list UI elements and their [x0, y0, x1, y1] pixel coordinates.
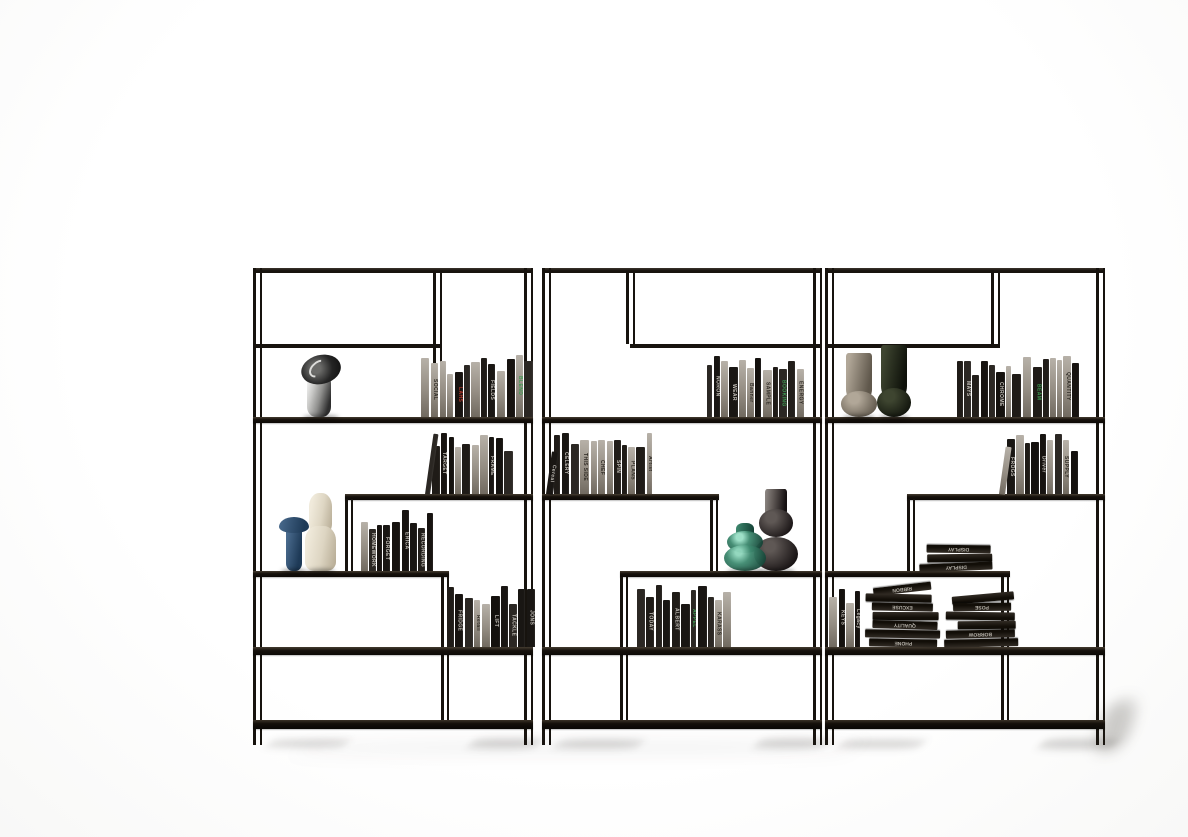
book-title: THIS SIDE — [582, 453, 587, 481]
book-spine — [636, 447, 645, 494]
step-shelf-b — [907, 494, 1105, 500]
object-shadow — [843, 415, 875, 420]
book-title: JONS — [529, 610, 534, 625]
book-title: LAHS — [457, 387, 462, 402]
book-row: HOMEWORKFORGETERICARECORDING — [361, 505, 441, 571]
book-title: MAYS — [965, 381, 970, 397]
book-title: Driver — [1040, 456, 1045, 473]
step-support — [710, 499, 718, 571]
book-spine — [462, 444, 470, 494]
book-spine — [1016, 435, 1023, 494]
unit-right-leg — [813, 268, 822, 745]
book-spine: SAMPLE — [763, 370, 772, 417]
book-spine — [501, 586, 508, 647]
book-spine: JONS — [527, 589, 535, 647]
book-spine: Retail — [474, 600, 480, 647]
book-spine — [440, 361, 447, 417]
shelf-d — [253, 647, 533, 655]
book-spine: MAYS — [964, 361, 972, 417]
book-spine — [721, 361, 728, 417]
book-title: QUANTITY — [1065, 372, 1070, 401]
book-spine: FRIDGE — [455, 594, 463, 647]
book-spine — [957, 361, 963, 417]
book-spine — [1023, 357, 1031, 417]
stacked-book: POSE — [953, 603, 1011, 612]
book-spine: ERICA — [402, 510, 409, 571]
book-title: SOCIAL — [432, 379, 437, 400]
book-spine: APPEL — [691, 590, 697, 647]
vase-sphere — [841, 391, 877, 417]
shelf-c — [825, 571, 1010, 577]
book-spine — [361, 522, 368, 572]
book-spine — [591, 441, 597, 494]
book-title: TARGET — [441, 452, 446, 475]
floor-shadow — [266, 740, 350, 747]
shelf-unit-middle: NORONWEARBannerSAMPLEBOOKINGENERGY Cerea… — [542, 268, 822, 745]
book-title: SPIN — [615, 460, 620, 473]
book-spine — [496, 438, 503, 494]
book-spine — [465, 598, 473, 647]
book-title: FRIDGE — [457, 610, 462, 631]
book-spine: QUANTITY — [1063, 356, 1071, 418]
book-title: SUPPLY — [1063, 456, 1068, 478]
book-row: FROGSDriverSUPPLY — [999, 428, 1091, 494]
book-spine — [504, 451, 513, 494]
book-spine: CELERY — [562, 433, 568, 494]
book-title: FIELDS — [489, 380, 494, 400]
floor-shadow — [554, 740, 645, 748]
book-spine: TODAY — [646, 597, 654, 647]
book-title: NORON — [715, 376, 720, 397]
sculpture-head — [298, 351, 344, 388]
step-support — [907, 499, 915, 571]
book-spine — [1071, 451, 1079, 494]
book-title: ALBERT — [673, 608, 678, 631]
olive-vase — [877, 345, 911, 417]
object-shadow — [727, 569, 764, 574]
vase-sphere — [877, 388, 911, 417]
vase-bottom-bulb — [724, 545, 766, 571]
floor-shadow — [467, 739, 543, 748]
stacked-book — [957, 621, 1015, 630]
taupe-vase — [841, 353, 877, 417]
bottom-shelf — [825, 720, 1105, 729]
book-title: TACKLE — [510, 614, 515, 636]
book-spine — [571, 444, 580, 494]
book-spine: NORON — [714, 356, 720, 417]
book-spine — [410, 523, 417, 571]
book-spine: FIELDS — [488, 364, 496, 417]
book-title: KARASS — [716, 612, 721, 636]
unit-left-leg — [253, 268, 262, 745]
cream-vase — [305, 493, 337, 571]
book-spine — [622, 445, 627, 494]
book-spine: LIFT — [491, 596, 499, 647]
book-title: CELERY — [563, 452, 568, 475]
book-title: SAMPLE — [765, 382, 770, 405]
book-title: Retail — [475, 615, 480, 631]
book-title: KEYS — [840, 610, 845, 625]
book-spine: BEAM — [1033, 367, 1042, 417]
book-spine: CHROME — [996, 372, 1005, 417]
stacked-book — [945, 612, 1014, 621]
book-title: HOMEWORK — [370, 533, 375, 567]
book-row: CerealCELERYTHIS SIDECHEFSPINPLANSArtist — [546, 428, 678, 494]
shelf-a — [542, 417, 822, 423]
book-pile: POSEBORROW — [943, 597, 1023, 647]
book-spine — [637, 589, 645, 647]
chrome-sculpture — [301, 355, 341, 417]
shelf-unit-right: MAYSCHROMEBEAMQUANTITY FROGSDriverSUPPLY… — [825, 268, 1105, 745]
step-support — [345, 499, 353, 571]
book-spine: ALBERT — [672, 592, 680, 647]
book-title: TODAY — [647, 612, 652, 631]
book-spine: LAHS — [455, 372, 463, 417]
book-spine — [482, 604, 490, 647]
box-divider — [626, 273, 635, 344]
unit-left-leg — [825, 268, 834, 745]
stacked-book — [866, 593, 932, 602]
book-spine — [447, 587, 454, 648]
book-spine — [392, 522, 400, 571]
box-bottom-bar — [253, 344, 440, 348]
book-title: APPEL — [691, 609, 696, 628]
unit-top-frame — [542, 268, 822, 273]
book-spine — [427, 513, 432, 571]
book-spine: TARGET — [441, 433, 447, 494]
book-spine — [1057, 360, 1062, 417]
book-stack: DISPLAYDISPLAY — [919, 543, 999, 571]
book-title: LIFT — [493, 615, 498, 627]
book-title: BEAM — [1035, 384, 1040, 400]
book-spine — [773, 367, 778, 417]
book-spine — [447, 374, 453, 417]
stacked-book: PHONE — [870, 638, 938, 647]
book-title: ENERGY — [798, 381, 803, 405]
book-spine — [1050, 358, 1056, 417]
book-title: FORGET — [384, 537, 389, 560]
box-bottom-bar — [825, 344, 1000, 348]
book-spine: FORGET — [383, 525, 390, 571]
floor-shadow — [753, 739, 831, 748]
book-title: CHROME — [998, 382, 1003, 407]
unit-top-frame — [253, 268, 533, 273]
stacked-book — [872, 612, 938, 620]
book-spine — [1012, 374, 1021, 417]
book-row: NORONWEARBannerSAMPLEBOOKINGENERGY — [707, 351, 807, 417]
book-spine — [656, 585, 663, 647]
stacked-book: QUALITY — [873, 620, 938, 630]
box-bottom-bar — [630, 344, 822, 348]
unit-right-leg — [1096, 268, 1105, 745]
book-spine: Banner — [747, 368, 755, 417]
book-spine — [481, 358, 487, 417]
book-spine: TACKLE — [509, 604, 518, 648]
book-spine — [421, 358, 429, 417]
book-spine — [607, 441, 613, 494]
book-pile: RIBBONEXCUSEQUALITYPHONE — [863, 581, 941, 647]
object-shadow — [281, 569, 307, 574]
stacked-book: BORROW — [946, 629, 1015, 639]
book-spine: BLEND — [516, 355, 523, 417]
teal-glass-vase — [724, 523, 766, 571]
book-spine: ENERGY — [797, 369, 804, 417]
book-title: CHEF — [599, 460, 604, 475]
book-spine: RECORDING — [418, 528, 425, 571]
stacked-book — [944, 638, 1018, 648]
book-spine — [472, 445, 479, 494]
book-spine — [1043, 359, 1049, 417]
book-title: Legacy — [855, 609, 860, 629]
floor-shadow — [838, 740, 927, 748]
object-shadow — [879, 415, 909, 420]
shelf-d — [825, 647, 1105, 655]
book-row: MAYSCHROMEBEAMQUANTITY — [957, 351, 1097, 417]
stacked-book: DISPLAY — [920, 561, 993, 572]
book-spine — [1072, 363, 1079, 417]
book-spine: BOOKING — [779, 369, 788, 417]
book-spine — [723, 592, 731, 647]
book-spine: WEAR — [729, 367, 738, 417]
step-shelf-b — [345, 494, 533, 500]
book-spine — [981, 361, 988, 417]
unit-left-leg — [542, 268, 551, 745]
book-spine — [707, 365, 712, 417]
box-divider — [991, 273, 1000, 344]
book-spine: KEYS — [839, 589, 845, 647]
book-title: PLANS — [629, 461, 634, 480]
shelf-d — [542, 647, 822, 655]
book-title: Banner — [748, 383, 753, 403]
book-row: TARGETFRAME — [425, 428, 523, 494]
book-spine — [464, 365, 469, 418]
book-spine — [663, 600, 669, 647]
book-spine: THIS SIDE — [580, 440, 588, 494]
book-spine: SPIN — [614, 440, 622, 494]
book-spine — [455, 447, 461, 494]
book-spine: FRAME — [489, 437, 494, 494]
shelf-a — [253, 417, 533, 423]
book-spine — [449, 437, 454, 494]
book-spine — [739, 360, 746, 417]
book-spine — [698, 586, 707, 647]
vase-bowl — [279, 517, 309, 533]
book-spine — [989, 365, 995, 417]
book-spine — [524, 361, 533, 417]
object-shadow — [307, 569, 335, 574]
book-spine — [846, 603, 854, 648]
book-row: TODAYALBERTAPPELKARASS — [637, 581, 725, 647]
blue-vase — [279, 517, 309, 571]
book-spine: Legacy — [855, 591, 861, 647]
book-title: RECORDING — [419, 533, 424, 567]
stacked-book — [865, 629, 940, 638]
book-spine — [788, 361, 794, 417]
book-spine — [829, 597, 837, 647]
book-spine: Driver — [1040, 434, 1046, 494]
unit-right-leg — [524, 268, 533, 745]
book-row: SOCIALLAHSFIELDSBLEND — [421, 351, 527, 417]
shelf-unit-left: SOCIALLAHSFIELDSBLEND TARGETFRAME HOMEWO… — [253, 268, 533, 745]
book-spine — [1055, 434, 1062, 494]
book-title: BLEND — [517, 376, 522, 395]
product-scene: SOCIALLAHSFIELDSBLEND TARGETFRAME HOMEWO… — [0, 0, 1188, 837]
stacked-book: DISPLAY — [926, 545, 990, 554]
book-spine — [497, 371, 505, 417]
book-spine — [377, 525, 382, 571]
book-spine: HOMEWORK — [369, 529, 376, 571]
bottom-shelf — [253, 720, 533, 729]
book-title: FRAME — [489, 456, 494, 476]
bottom-shelf — [542, 720, 822, 729]
book-spine — [518, 589, 524, 648]
book-spine: SOCIAL — [431, 363, 438, 417]
book-spine: KARASS — [715, 600, 722, 647]
book-spine — [755, 358, 760, 417]
unit-top-frame — [825, 268, 1105, 273]
book-row: KEYSLegacy — [829, 581, 865, 647]
vase-body — [286, 528, 302, 571]
stacked-book: EXCUSE — [871, 602, 932, 611]
book-spine: PLANS — [628, 447, 635, 494]
book-spine — [1031, 442, 1039, 494]
vase-bottom — [305, 526, 336, 571]
book-spine — [1025, 443, 1030, 494]
book-spine: Artist — [647, 433, 652, 494]
book-title: ERICA — [403, 532, 408, 550]
book-spine — [708, 597, 714, 647]
book-spine: CHEF — [598, 440, 606, 494]
book-spine — [681, 604, 690, 647]
book-spine — [1047, 440, 1053, 494]
book-title: WEAR — [731, 384, 736, 401]
book-spine — [1006, 366, 1012, 417]
book-spine — [480, 435, 488, 494]
book-title: BOOKING — [781, 380, 786, 407]
book-spine: SUPPLY — [1063, 440, 1069, 494]
book-title: Artist — [647, 456, 652, 471]
book-spine — [471, 362, 480, 417]
step-shelf-b — [542, 494, 719, 500]
book-spine — [972, 375, 978, 417]
book-row: FRIDGERetailLIFTTACKLEJONS — [447, 581, 527, 647]
book-spine — [507, 359, 515, 417]
object-shadow — [303, 415, 338, 420]
